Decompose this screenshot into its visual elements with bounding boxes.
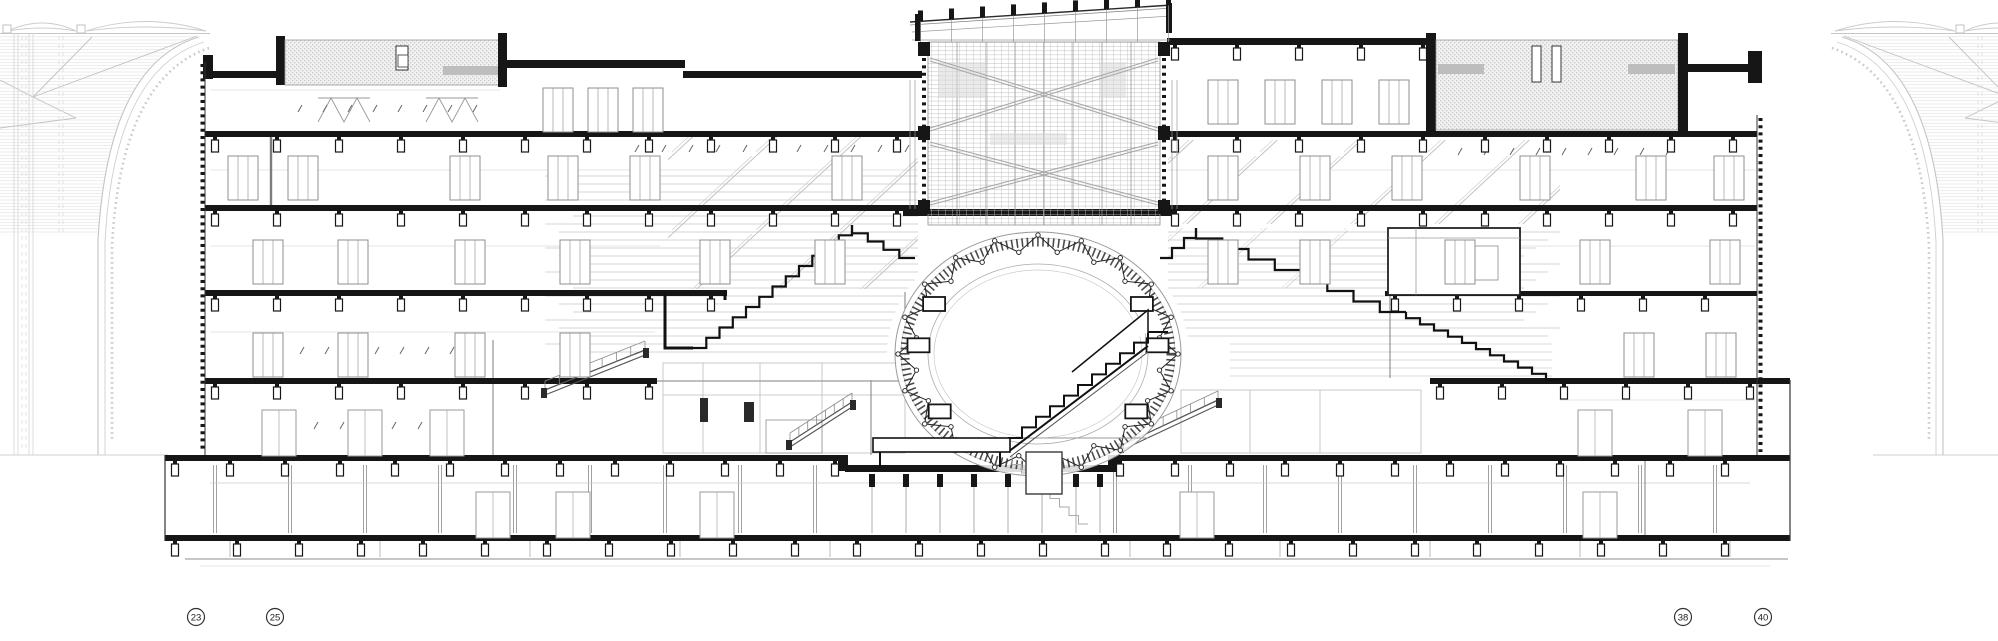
grid-bubble-label: 25 xyxy=(270,612,281,623)
stair-landing xyxy=(873,438,1010,452)
grid-bubble-25: 25 xyxy=(267,609,284,626)
roof-posts xyxy=(918,0,1171,42)
context-shed-left xyxy=(0,22,210,456)
architectural-section-sheet: 23 25 38 40 xyxy=(0,0,1998,641)
grid-bubble-label: 40 xyxy=(1758,612,1769,623)
grid-bubble-40: 40 xyxy=(1755,609,1772,626)
roof-truss-w-left xyxy=(318,98,478,122)
context-shed-right xyxy=(1831,22,1998,456)
section-drawing: 23 25 38 40 xyxy=(0,0,1998,641)
fly-tower xyxy=(910,0,1177,225)
grid-bubble-label: 23 xyxy=(191,612,202,623)
grid-bubble-38: 38 xyxy=(1675,609,1692,626)
roof-screen-box-left xyxy=(285,40,500,85)
grid-bubble-label: 38 xyxy=(1678,612,1689,623)
grid-bubbles: 23 25 38 40 xyxy=(188,609,1772,626)
grid-bubble-23: 23 xyxy=(188,609,205,626)
elevator-shaft xyxy=(1026,452,1062,494)
sphere-auditorium xyxy=(873,232,1181,524)
